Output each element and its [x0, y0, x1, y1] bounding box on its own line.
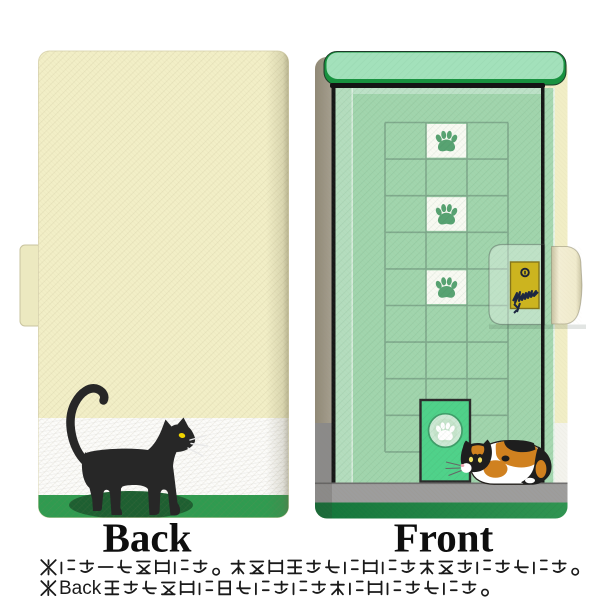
- svg-text:Back: Back: [103, 515, 192, 561]
- svg-text:Front: Front: [394, 515, 494, 561]
- svg-text:Back: Back: [59, 578, 102, 599]
